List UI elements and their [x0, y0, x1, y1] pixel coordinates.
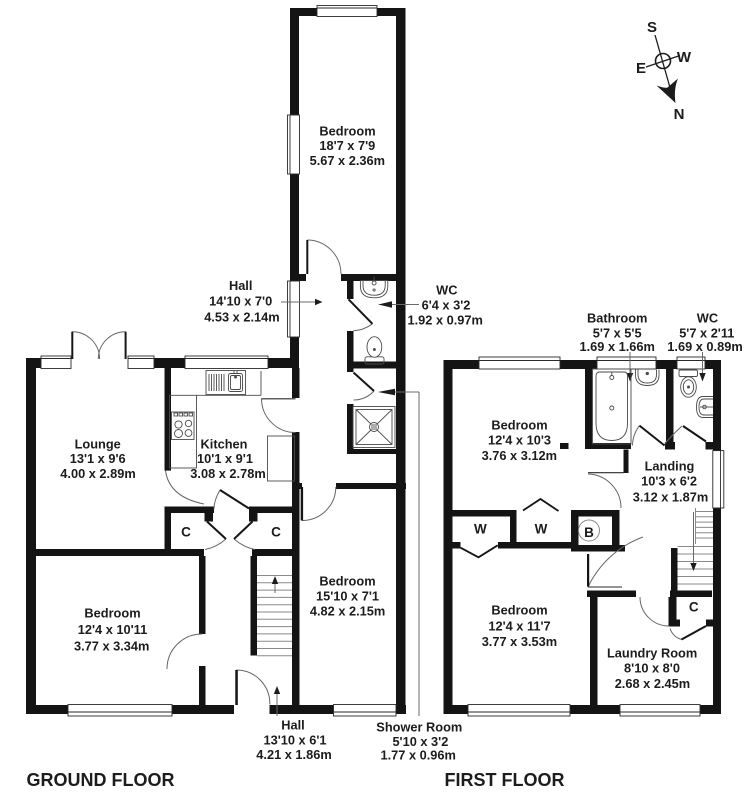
- svg-text:C: C: [689, 600, 699, 615]
- svg-text:Lounge: Lounge: [75, 437, 121, 452]
- svg-text:S: S: [647, 19, 657, 36]
- svg-text:W: W: [535, 521, 548, 536]
- svg-text:B: B: [584, 525, 594, 540]
- svg-text:10'3 x 6'2: 10'3 x 6'2: [641, 474, 697, 489]
- svg-text:C: C: [271, 525, 281, 540]
- svg-text:15'10 x 7'1: 15'10 x 7'1: [316, 589, 379, 604]
- svg-text:Landing: Landing: [645, 459, 695, 474]
- svg-text:8'10 x 8'0: 8'10 x 8'0: [624, 661, 680, 676]
- svg-text:1.69 x 1.66m: 1.69 x 1.66m: [579, 339, 654, 354]
- svg-text:Laundry Room: Laundry Room: [607, 645, 697, 660]
- svg-text:4.82 x 2.15m: 4.82 x 2.15m: [310, 604, 385, 619]
- svg-text:Bedroom: Bedroom: [491, 418, 547, 433]
- svg-text:4.21 x 1.86m: 4.21 x 1.86m: [256, 747, 331, 762]
- svg-text:5.67 x 2.36m: 5.67 x 2.36m: [310, 153, 385, 168]
- svg-text:5'7 x 5'5: 5'7 x 5'5: [593, 325, 642, 340]
- svg-text:W: W: [677, 49, 692, 66]
- svg-text:13'10 x 6'1: 13'10 x 6'1: [263, 733, 326, 748]
- svg-text:3.12 x 1.87m: 3.12 x 1.87m: [633, 489, 708, 504]
- svg-text:12'4 x 11'7: 12'4 x 11'7: [488, 618, 550, 633]
- svg-text:3.77 x 3.34m: 3.77 x 3.34m: [74, 639, 149, 654]
- svg-text:3.77 x 3.53m: 3.77 x 3.53m: [482, 634, 557, 649]
- svg-text:5'10 x 3'2: 5'10 x 3'2: [392, 734, 448, 749]
- svg-text:4.00 x 2.89m: 4.00 x 2.89m: [60, 466, 135, 481]
- svg-text:GROUND FLOOR: GROUND FLOOR: [27, 770, 175, 790]
- svg-text:WC: WC: [697, 310, 718, 325]
- svg-text:6'4 x 3'2: 6'4 x 3'2: [422, 298, 471, 313]
- svg-text:C: C: [181, 525, 191, 540]
- svg-text:N: N: [674, 106, 685, 123]
- svg-text:18'7 x 7'9: 18'7 x 7'9: [319, 138, 375, 153]
- svg-text:Bedroom: Bedroom: [84, 606, 140, 621]
- svg-text:12'4 x 10'3: 12'4 x 10'3: [488, 433, 551, 448]
- svg-text:3.76 x 3.12m: 3.76 x 3.12m: [482, 448, 557, 463]
- svg-text:E: E: [636, 60, 646, 77]
- svg-text:Hall: Hall: [281, 718, 304, 733]
- svg-text:4.53 x 2.14m: 4.53 x 2.14m: [204, 309, 279, 324]
- svg-text:W: W: [474, 521, 487, 536]
- svg-text:Bedroom: Bedroom: [491, 603, 547, 618]
- svg-text:Bedroom: Bedroom: [319, 574, 375, 589]
- svg-text:5'7 x 2'11: 5'7 x 2'11: [679, 325, 734, 340]
- svg-text:Shower Room: Shower Room: [376, 720, 462, 735]
- svg-text:1.92 x 0.97m: 1.92 x 0.97m: [407, 313, 482, 328]
- svg-text:WC: WC: [436, 282, 457, 297]
- svg-text:14'10 x 7'0: 14'10 x 7'0: [209, 294, 272, 309]
- svg-text:Kitchen: Kitchen: [201, 437, 248, 452]
- svg-text:3.08 x 2.78m: 3.08 x 2.78m: [190, 466, 265, 481]
- svg-text:Hall: Hall: [229, 278, 252, 293]
- svg-text:2.68 x 2.45m: 2.68 x 2.45m: [615, 676, 690, 691]
- svg-text:1.69 x 0.89m: 1.69 x 0.89m: [667, 339, 742, 354]
- svg-text:1.77 x 0.96m: 1.77 x 0.96m: [380, 748, 455, 763]
- svg-text:FIRST FLOOR: FIRST FLOOR: [445, 770, 565, 790]
- svg-text:10'1 x 9'1: 10'1 x 9'1: [197, 451, 253, 466]
- svg-text:Bathroom: Bathroom: [587, 310, 647, 325]
- svg-text:Bedroom: Bedroom: [319, 123, 375, 138]
- svg-text:12'4 x 10'11: 12'4 x 10'11: [78, 622, 147, 637]
- svg-text:13'1 x 9'6: 13'1 x 9'6: [70, 451, 126, 466]
